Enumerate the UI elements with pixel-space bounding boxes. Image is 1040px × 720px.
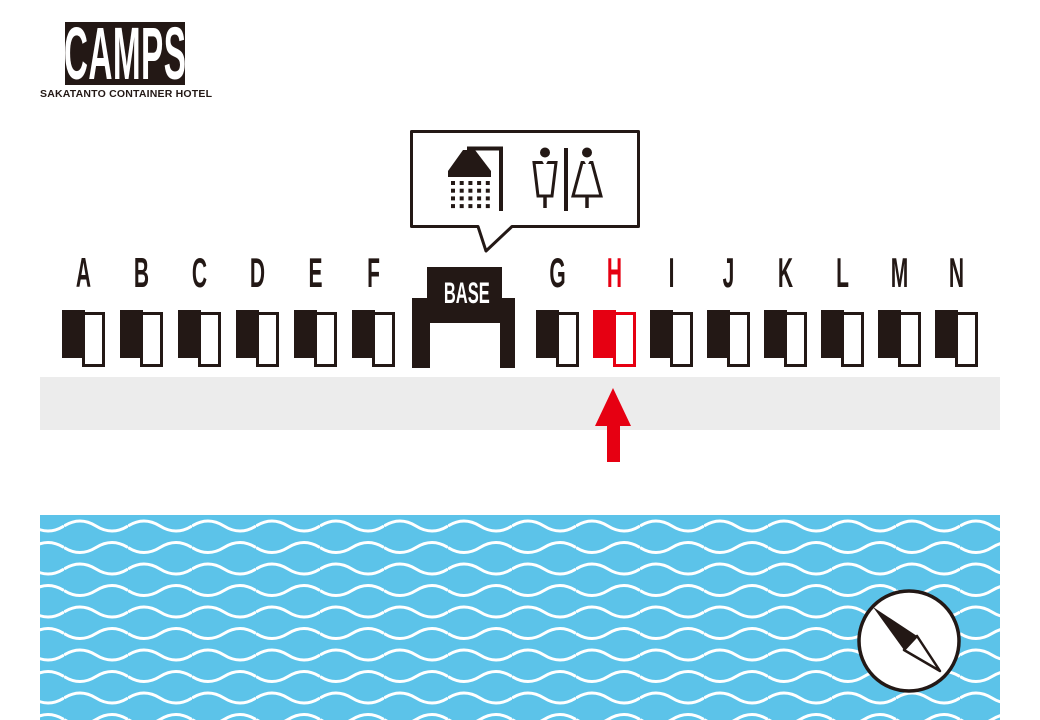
unit-label: J (718, 256, 740, 290)
unit-block-outline (613, 312, 636, 367)
hotel-site-map: CAMPS SAKATANTO CONTAINER HOTEL BASE ABC… (0, 0, 1040, 720)
unit-block-outline (841, 312, 864, 367)
unit-label: H (604, 256, 626, 290)
walkway-band (40, 377, 1000, 430)
logo-box: CAMPS (65, 22, 185, 85)
unit-label: F (363, 256, 385, 290)
container-unit-D: D (236, 256, 279, 372)
unit-label: A (73, 256, 95, 290)
container-unit-H: H (593, 256, 636, 372)
unit-label: M (889, 256, 911, 290)
container-unit-G: G (536, 256, 579, 372)
unit-label: I (661, 256, 683, 290)
unit-block-outline (670, 312, 693, 367)
container-unit-K: K (764, 256, 807, 372)
spray-dot (468, 204, 472, 208)
unit-label: C (189, 256, 211, 290)
logo-title: CAMPS (65, 22, 185, 85)
unit-label: G (547, 256, 569, 290)
unit-label: K (775, 256, 797, 290)
unit-block-outline (372, 312, 395, 367)
container-unit-M: M (878, 256, 921, 372)
container-unit-B: B (120, 256, 163, 372)
bubble-outline (412, 132, 639, 252)
spray-dot (486, 181, 490, 185)
unit-block-outline (314, 312, 337, 367)
unit-block-outline (256, 312, 279, 367)
unit-block-outline (898, 312, 921, 367)
container-unit-C: C (178, 256, 221, 372)
container-unit-F: F (352, 256, 395, 372)
container-unit-I: I (650, 256, 693, 372)
womens-head (582, 148, 592, 158)
base-building-label: BASE (444, 281, 485, 307)
spray-dot (477, 181, 481, 185)
container-unit-N: N (935, 256, 978, 372)
wave-pattern (40, 515, 1000, 720)
spray-dot (460, 189, 464, 193)
unit-block-outline (82, 312, 105, 367)
spray-dot (451, 189, 455, 193)
container-unit-A: A (62, 256, 105, 372)
facilities-bubble (412, 132, 639, 252)
unit-label: B (131, 256, 153, 290)
unit-label: N (946, 256, 968, 290)
spray-dot (460, 196, 464, 200)
spray-dot (477, 204, 481, 208)
spray-dot (477, 189, 481, 193)
compass-icon (859, 591, 959, 691)
unit-block-outline (198, 312, 221, 367)
spray-dot (486, 196, 490, 200)
water-area (40, 515, 1000, 720)
spray-dot (451, 196, 455, 200)
spray-dot (486, 204, 490, 208)
unit-label: D (247, 256, 269, 290)
spray-dot (451, 204, 455, 208)
unit-block-outline (784, 312, 807, 367)
spray-dot (468, 189, 472, 193)
container-unit-L: L (821, 256, 864, 372)
unit-block-outline (727, 312, 750, 367)
unit-block-outline (140, 312, 163, 367)
spray-dot (460, 181, 464, 185)
container-unit-J: J (707, 256, 750, 372)
container-unit-E: E (294, 256, 337, 372)
spray-dot (460, 204, 464, 208)
spray-dot (486, 189, 490, 193)
logo-subtitle: SAKATANTO CONTAINER HOTEL (40, 88, 210, 100)
mens-head (540, 148, 550, 158)
spray-dot (451, 181, 455, 185)
unit-block-outline (556, 312, 579, 367)
unit-label: E (305, 256, 327, 290)
spray-dot (477, 196, 481, 200)
unit-label: L (832, 256, 854, 290)
spray-dot (468, 196, 472, 200)
spray-dot (468, 181, 472, 185)
unit-block-outline (955, 312, 978, 367)
